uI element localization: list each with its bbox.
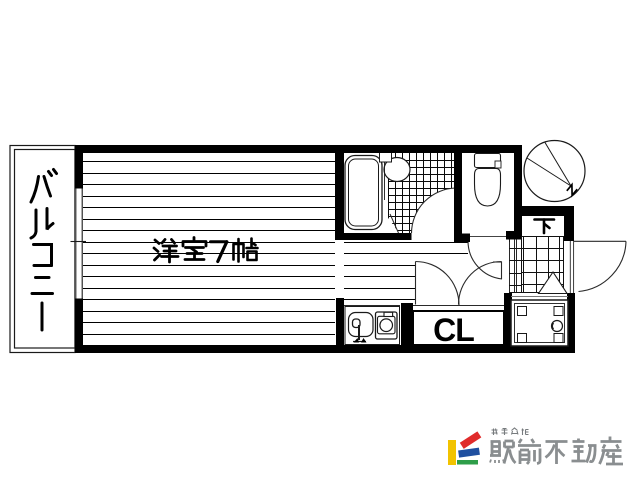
svg-text:CL: CL [433,312,474,348]
